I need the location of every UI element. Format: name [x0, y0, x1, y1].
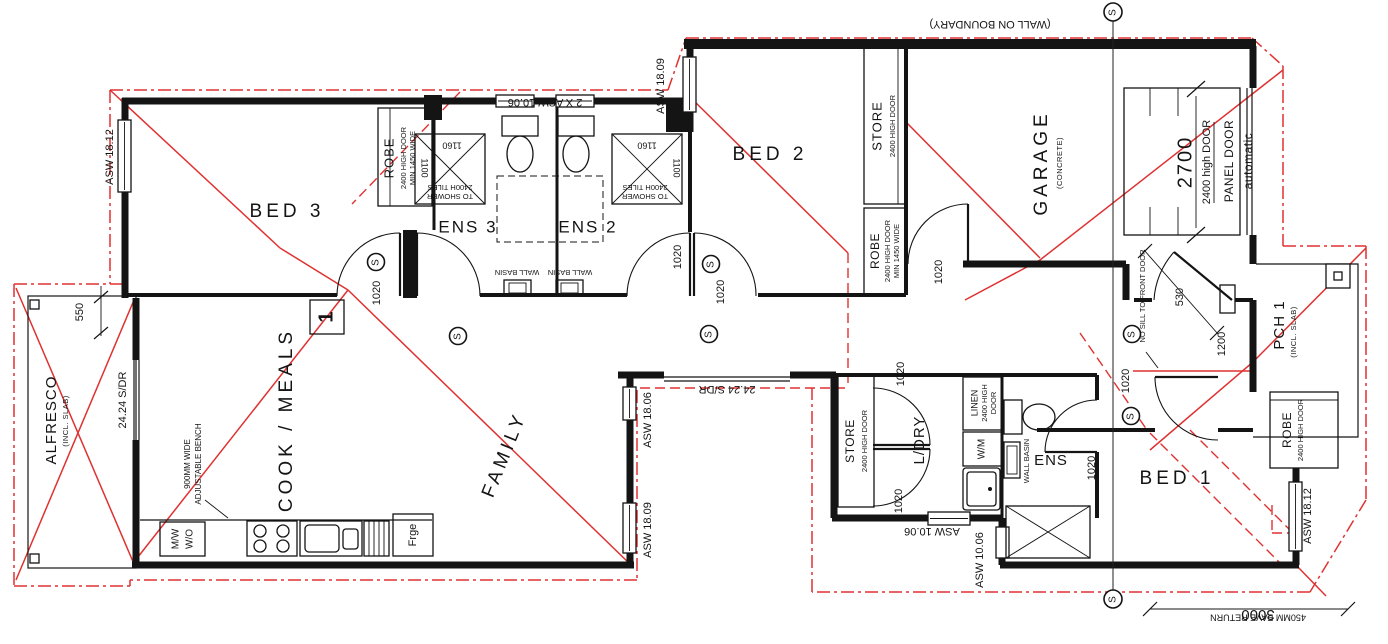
- robe-bed1-door-note: 2400 HIGH DOOR: [1296, 398, 1305, 461]
- dishwasher: [364, 521, 389, 556]
- linen-label: LINEN: [969, 390, 979, 417]
- dim-1020-bed2-door: 1020: [715, 280, 727, 304]
- smoke-alarm-icon: S: [453, 333, 464, 340]
- room-label-bed3: BED 3: [250, 201, 325, 222]
- smoke-alarm-icon: S: [704, 331, 715, 338]
- sewer-s-icon: S: [1108, 9, 1119, 16]
- wall-basin-label-ens2: WALL BASIN: [548, 268, 592, 277]
- window-tag-asw1006-ldry: ASW 10.06: [904, 525, 960, 537]
- shower-tiles-note-ens3-1: 2400H TILES: [428, 183, 473, 192]
- linen-note-1: 2400 HIGH: [980, 384, 989, 422]
- room-sublabel-garage: (CONCRETE): [1055, 137, 1064, 189]
- robe-bed2-door-note: 2400 HIGH DOOR: [883, 219, 892, 282]
- wall-basin-label-ens: WALL BASIN: [1022, 439, 1031, 483]
- microwave-oven-tower: [160, 522, 205, 556]
- robe-bed1-label: ROBE: [1280, 412, 1294, 448]
- marker-1-label: 1: [315, 311, 337, 322]
- window-tag-asw1809-family: ASW 18.09: [642, 502, 654, 558]
- fridge-label: Frge: [407, 524, 419, 547]
- room-label-family: FAMILY: [478, 409, 531, 500]
- no-sill-leader: [1146, 352, 1158, 368]
- dim-1020-ens3-door: 1020: [408, 245, 420, 269]
- porch-slab: [1253, 264, 1358, 437]
- robe-bed3-door-note: 2400 HIGH DOOR: [399, 126, 408, 189]
- bench-note-2: ADJUSTABLE BENCH: [194, 423, 203, 504]
- boundary-wall-note: (WALL ON BOUNDARY): [929, 18, 1050, 30]
- washing-machine-label: W/M: [977, 439, 988, 460]
- store-garage-door-note: 2400 HIGH DOOR: [888, 94, 897, 157]
- room-sublabel-pch1: (INCL. SLAB): [1289, 306, 1298, 357]
- dim-1020-bed1-door: 1020: [1120, 369, 1132, 393]
- room-sublabel-alfresco: (INCL. SLAB): [61, 395, 70, 446]
- shower-ens: [1006, 506, 1090, 558]
- room-label-bed1: BED 1: [1140, 468, 1215, 489]
- store-ldry-door-note: 2400 HIGH DOOR: [860, 409, 869, 472]
- room-label-ens2: ENS 2: [558, 217, 617, 236]
- store-ldry-label: STORE: [843, 419, 857, 463]
- smoke-alarm-icon: S: [371, 259, 382, 266]
- toilet-ens2: [558, 116, 594, 172]
- window-tag-asw1809-bed2: ASW 18.09: [655, 58, 667, 114]
- sewer-line: S S: [1104, 3, 1122, 608]
- robe-bed3-label: ROBE: [381, 138, 396, 179]
- garage-door-type-note: PANEL DOOR: [1222, 120, 1236, 202]
- sink: [300, 521, 362, 556]
- room-label-pch1: PCH 1: [1271, 300, 1288, 349]
- garage-door-height-note: 2400 high DOOR: [1201, 120, 1213, 204]
- microwave-label: M/W: [171, 528, 182, 549]
- room-label-alfresco: ALFRESCO: [43, 376, 60, 465]
- dim-1020-garage-door: 1020: [933, 260, 945, 284]
- bench-note-1: 900MM WIDE: [183, 439, 192, 489]
- garage-door-mode-note: automatic: [1241, 133, 1255, 190]
- garage-door-width-dim: 2700: [1174, 136, 1196, 189]
- floor-plan-drawing: S S S S S S S S BED 3 ENS 3 ENS 2 BED 2 …: [0, 0, 1388, 644]
- room-label-ldry: L/DRY: [911, 416, 928, 465]
- exterior-walls: [122, 44, 1299, 568]
- dim-1200-front-door: 1200: [1216, 332, 1228, 356]
- bench-leader-line: [205, 500, 228, 518]
- dim-1160-shower-ens2: 1160: [637, 141, 656, 151]
- wall-basin-label-ens3: WALL BASIN: [495, 268, 539, 277]
- slider-tag-alfresco: 24.24 S/DR: [117, 372, 129, 429]
- toilet-ens3: [502, 116, 538, 172]
- dim-1160-shower-ens3: 1160: [442, 141, 461, 151]
- window-tag-asw1006-ens: ASW 10.06: [974, 532, 986, 588]
- dim-1020-ldry-door-1: 1020: [895, 362, 907, 386]
- room-label-bed2: BED 2: [733, 144, 808, 165]
- dim-eave-return: 450MM EAVE RETURN: [1210, 613, 1306, 623]
- alfresco-post: [30, 554, 39, 563]
- sewer-s-icon: S: [1108, 596, 1119, 603]
- laundry-trough: [963, 468, 1000, 510]
- shower-tiles-note-ens2-1: 2400H TILES: [623, 183, 668, 192]
- smoke-alarm-icon: S: [1127, 331, 1138, 338]
- room-label-cook-meals: COOK / MEALS: [276, 328, 297, 512]
- room-label-ens3: ENS 3: [438, 217, 497, 236]
- window-tag-asw1812-bed1: ASW 18.12: [1302, 488, 1314, 544]
- room-label-ens: ENS: [1034, 452, 1068, 469]
- dim-1020-ens2-door: 1020: [672, 245, 684, 269]
- no-sill-note: NO SILL TO FRONT DOOR: [1138, 249, 1147, 343]
- shower-tiles-note-ens2-2: TO SHOWER: [621, 192, 668, 201]
- entry-sidelight: [1220, 285, 1235, 313]
- shower-tiles-note-ens3-2: TO SHOWER: [426, 192, 473, 201]
- smoke-alarm-icon: S: [706, 261, 717, 268]
- dim-1020-ldry-door-2: 1020: [893, 489, 905, 513]
- room-label-garage: GARAGE: [1031, 110, 1052, 215]
- slider-tag-family: 24.24 S/DR: [699, 383, 756, 395]
- wall-oven-label: W/O: [185, 529, 196, 549]
- store-garage-label: STORE: [869, 101, 884, 151]
- window-tag-2xasw1006: 2 X ASW 10.06: [508, 96, 583, 108]
- basin-ens: [1004, 442, 1020, 478]
- dim-530: 530: [1174, 288, 1186, 306]
- robe-bed2-width-note: MIN 1450 WIDE: [892, 224, 901, 278]
- window-asw1006-ens: [996, 527, 1009, 558]
- cooktop: [247, 521, 297, 556]
- dim-550: 550: [74, 303, 86, 321]
- window-tag-asw1812-bed3: ASW 18.12: [104, 129, 116, 185]
- linen-note-2: DOOR: [989, 391, 998, 414]
- window-tag-asw1806-family: ASW 18.06: [642, 392, 654, 448]
- dim-1100-shower-ens2: 1100: [672, 158, 682, 177]
- alfresco-post: [30, 300, 39, 309]
- dim-1100-shower-ens3: 1100: [420, 158, 430, 177]
- robe-bed2-label: ROBE: [868, 233, 882, 269]
- smoke-alarm-icon: S: [1126, 413, 1137, 420]
- floor-plan-canvas: S S S S S S S S BED 3 ENS 3 ENS 2 BED 2 …: [0, 0, 1388, 644]
- dim-1020-bed3-door: 1020: [371, 281, 383, 305]
- robe-bed3-width-note: MIN 1450 WIDE: [408, 131, 417, 185]
- dim-1020-ens-door: 1020: [1086, 456, 1098, 480]
